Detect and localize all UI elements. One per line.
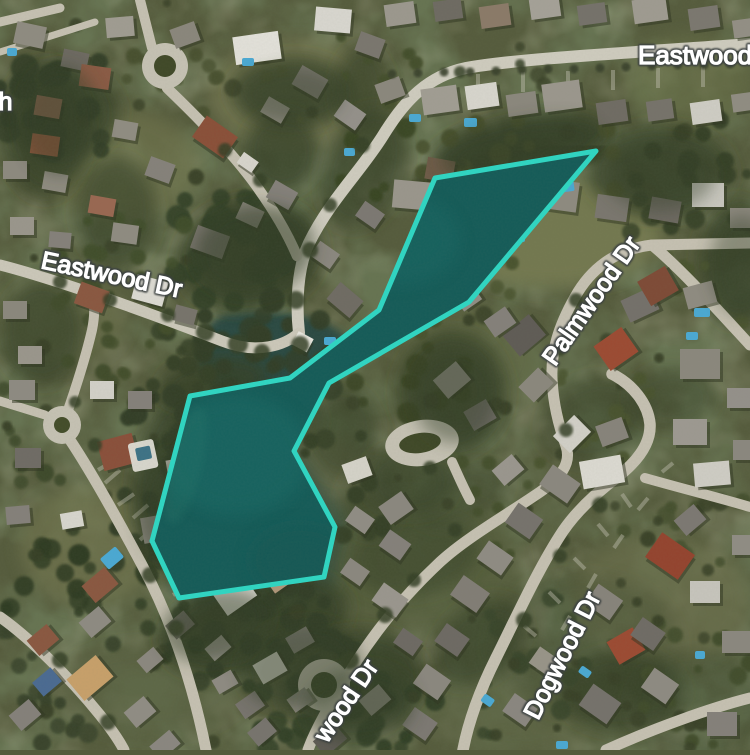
- svg-text:Eastwood Dr: Eastwood Dr: [638, 40, 750, 70]
- svg-text:h: h: [0, 88, 12, 116]
